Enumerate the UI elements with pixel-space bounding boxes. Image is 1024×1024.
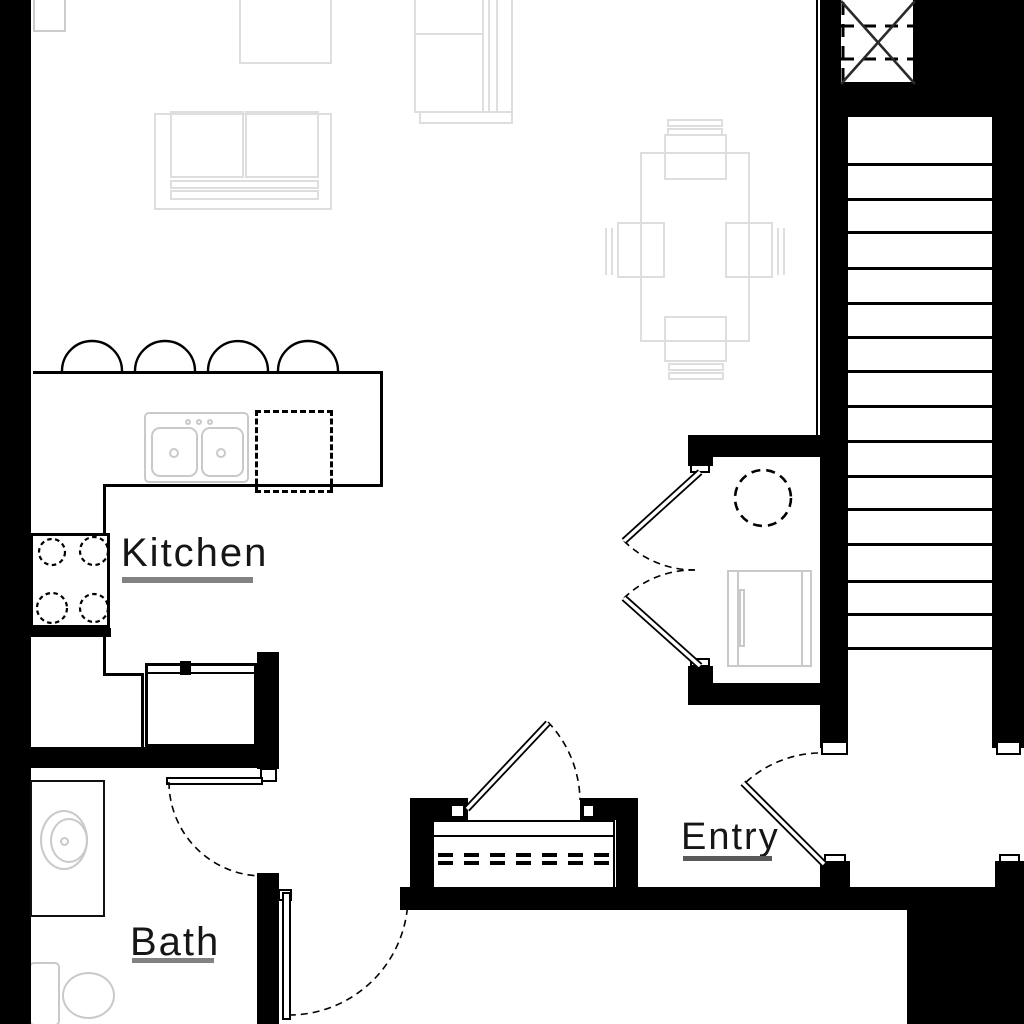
sink-faucet-dot (185, 419, 191, 425)
door-frame-notch (690, 464, 710, 473)
toilet-tank (29, 962, 60, 1024)
dining-chair-back (667, 119, 723, 127)
dining-chair-seat (664, 134, 727, 180)
counter-edge (103, 637, 106, 676)
stair-tread (848, 198, 992, 201)
stair-tread (848, 475, 992, 478)
dining-chair-back (783, 228, 785, 275)
bar-stool-arc (278, 341, 338, 371)
armchair-back-line (482, 0, 484, 111)
east-wall-line (816, 0, 818, 435)
sink-drain (169, 448, 179, 458)
shaft-x-symbol (841, 0, 917, 86)
sink-faucet-dot (196, 419, 202, 425)
utility-closet-bottom-wall (688, 683, 820, 705)
sofa-front-band (170, 180, 319, 189)
dining-chair-back (605, 228, 607, 275)
utility-door-arc (624, 541, 695, 570)
water-heater (735, 470, 791, 526)
closet-rod-dashes (438, 853, 609, 857)
stair-tread (848, 580, 992, 583)
refrigerator-line (148, 672, 254, 674)
utility-closet-top-wall (688, 435, 848, 457)
bottom-wall (400, 887, 1024, 910)
stair-tread (848, 163, 992, 166)
dishwasher (255, 410, 333, 493)
entry-label-text: Entry (681, 816, 780, 858)
vanity-counter (30, 780, 105, 917)
dining-chair-seat (664, 316, 727, 362)
fridge-jamb-column (257, 652, 279, 769)
door-frame-notch (824, 854, 846, 863)
hall-door-arc (289, 896, 408, 1015)
sink-faucet-dot (207, 419, 213, 425)
stair-tread (848, 336, 992, 339)
armchair-body (414, 0, 513, 113)
counter-edge (103, 673, 144, 676)
door-frame-notch (450, 804, 465, 818)
counter-edge (33, 371, 383, 374)
closet-door-leaf (467, 723, 548, 809)
bath-door-column (257, 873, 279, 1024)
stair-tread (848, 613, 992, 616)
door-frame-notch (582, 804, 595, 818)
side-table (239, 0, 332, 64)
kitchen-hall-wall (30, 747, 278, 768)
stair-tread (848, 647, 992, 650)
counter-edge (103, 484, 106, 536)
bath-door-leaf (166, 777, 263, 785)
stair-tread (848, 543, 992, 546)
sofa-cushion (170, 111, 244, 178)
door-frame-notch (996, 741, 1021, 755)
utility-door-leaf (624, 472, 700, 541)
stair-tread (848, 370, 992, 373)
counter-edge (141, 673, 144, 749)
sink-drain (216, 448, 226, 458)
left-exterior-wall (0, 0, 31, 1024)
hall-door-leaf (282, 892, 291, 1020)
dining-chair-seat (617, 222, 665, 278)
bar-stool-arc (135, 341, 195, 371)
room-label-entry: Entry (681, 816, 780, 859)
entry-label-underline (683, 856, 772, 861)
stair-tread (848, 440, 992, 443)
entry-door-jamb (995, 861, 1024, 888)
entry-door-arc (743, 753, 818, 785)
wall-frame-notch (33, 0, 66, 32)
sofa-cushion (245, 111, 319, 178)
stove-bottom-wall (31, 628, 111, 637)
bar-stool-arc (62, 341, 122, 371)
utility-door-leaf (624, 598, 700, 666)
utility-door-arc (624, 570, 695, 598)
entry-closet-right-wall (616, 798, 638, 890)
dining-chair-back (668, 372, 724, 380)
closet-shelf-line (434, 835, 613, 837)
bar-stool-arc (208, 341, 268, 371)
armchair-divider (414, 33, 482, 35)
bath-label-underline (132, 958, 214, 963)
toilet-bowl (62, 972, 115, 1019)
stair-left-wall (820, 117, 848, 748)
dining-chair-seat (725, 222, 773, 278)
stair-tread (848, 302, 992, 305)
dining-chair-back (668, 363, 724, 371)
dining-chair-back (611, 228, 613, 275)
armchair-front-band (419, 111, 513, 124)
stair-tread (848, 231, 992, 234)
refrigerator (145, 663, 257, 747)
armchair-back-line (496, 0, 498, 111)
stove (30, 533, 110, 628)
closet-rod-dashes (438, 861, 609, 865)
stair-right-wall (992, 117, 1024, 748)
counter-edge (380, 371, 383, 487)
sofa-front-band (170, 190, 319, 200)
bath-door-arc (169, 782, 263, 876)
stair-tread (848, 508, 992, 511)
dining-chair-back (777, 228, 779, 275)
appliance-handle (739, 589, 745, 647)
counter-edge (103, 484, 383, 487)
stair-tread (848, 405, 992, 408)
closet-door-arc (548, 722, 580, 800)
refrigerator-divider (180, 661, 191, 675)
bottom-right-wall-mass (907, 910, 1024, 1024)
room-label-kitchen: Kitchen (121, 531, 268, 576)
kitchen-label-text: Kitchen (121, 531, 268, 575)
stair-tread (848, 267, 992, 270)
kitchen-label-underline (122, 577, 253, 583)
floor-plan: Kitchen Bath Entry (0, 0, 1024, 1024)
appliance-line (801, 572, 803, 665)
utility-jamb-stub (688, 666, 713, 683)
armchair-back-line (488, 0, 490, 111)
door-frame-notch (690, 658, 710, 667)
door-frame-notch (999, 854, 1020, 863)
door-frame-notch (821, 741, 848, 755)
entry-door-jamb (820, 861, 850, 888)
